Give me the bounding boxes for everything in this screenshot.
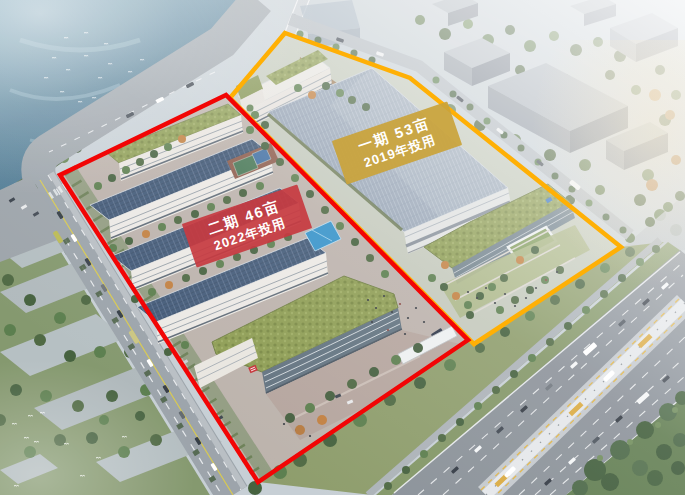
aerial-rendering: 一期 53亩 2019年投用 二期 46亩 2022年投用	[0, 0, 685, 495]
site-rendering-canvas	[0, 0, 685, 495]
atmosphere-haze	[0, 0, 685, 495]
